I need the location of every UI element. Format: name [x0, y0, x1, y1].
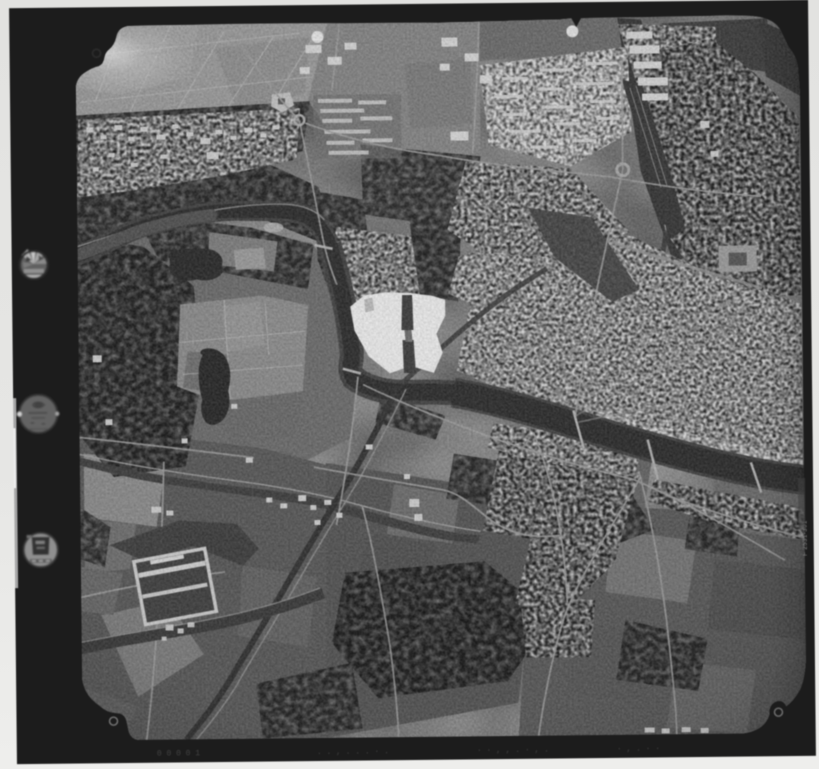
svg-text:. . , . . . · .: . . , . . . · . [317, 747, 389, 757]
svg-text:0 0 0 0 1: 0 0 0 0 1 [157, 749, 200, 758]
svg-text:· · , , . · , .: · · , , . · , . [477, 746, 549, 756]
svg-text:· , . · ·: · , . · · [617, 744, 660, 753]
